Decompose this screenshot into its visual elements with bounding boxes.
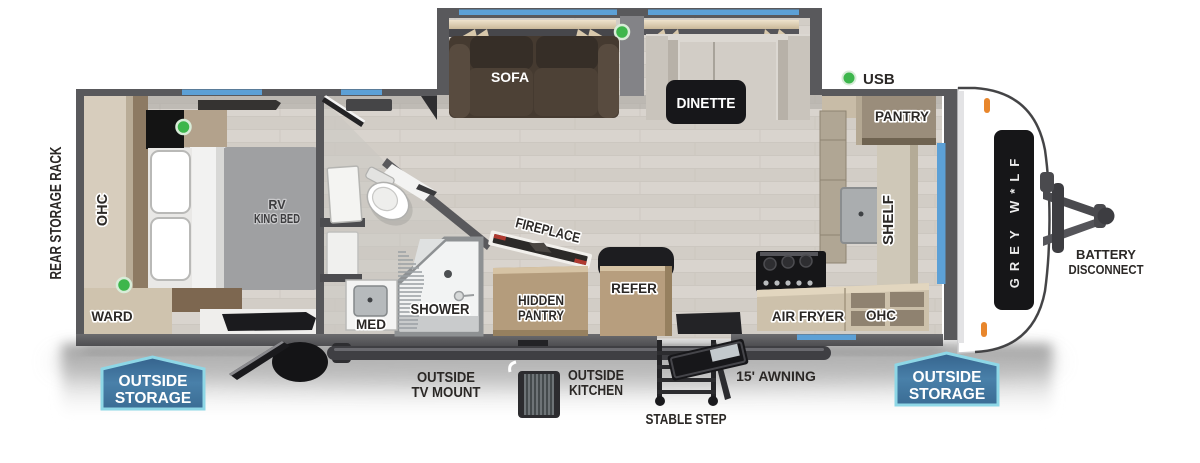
- svg-text:GREY W*LF: GREY W*LF: [1007, 152, 1022, 288]
- svg-text:RV: RV: [268, 198, 286, 212]
- svg-text:AIR FRYER: AIR FRYER: [772, 309, 845, 324]
- svg-text:TV MOUNT: TV MOUNT: [412, 385, 481, 401]
- svg-text:OUTSIDE: OUTSIDE: [568, 368, 624, 384]
- svg-text:OHC: OHC: [866, 308, 896, 323]
- svg-text:OUTSIDE: OUTSIDE: [913, 369, 982, 386]
- svg-text:SOFA: SOFA: [491, 69, 529, 85]
- svg-text:DINETTE: DINETTE: [677, 95, 736, 112]
- svg-text:DISCONNECT: DISCONNECT: [1069, 262, 1144, 277]
- svg-text:BATTERY: BATTERY: [1076, 247, 1136, 262]
- svg-text:PANTRY: PANTRY: [518, 308, 564, 323]
- svg-text:HIDDEN: HIDDEN: [518, 293, 564, 308]
- svg-text:OUTSIDE: OUTSIDE: [417, 370, 475, 386]
- svg-text:STORAGE: STORAGE: [909, 386, 985, 403]
- svg-text:REFER: REFER: [611, 281, 657, 296]
- svg-text:STABLE STEP: STABLE STEP: [646, 411, 727, 428]
- svg-text:USB: USB: [863, 71, 895, 88]
- svg-text:PANTRY: PANTRY: [875, 109, 929, 124]
- svg-text:SHELF: SHELF: [880, 195, 897, 245]
- svg-text:KING BED: KING BED: [254, 212, 300, 226]
- svg-text:REAR STORAGE RACK: REAR STORAGE RACK: [48, 146, 65, 280]
- svg-text:STORAGE: STORAGE: [115, 390, 191, 407]
- svg-text:WARD: WARD: [91, 309, 132, 324]
- svg-text:KITCHEN: KITCHEN: [569, 383, 623, 399]
- svg-text:MED: MED: [356, 317, 386, 332]
- svg-text:OHC: OHC: [95, 193, 111, 226]
- svg-text:SHOWER: SHOWER: [411, 301, 470, 318]
- svg-text:15' AWNING: 15' AWNING: [736, 368, 816, 384]
- svg-text:OUTSIDE: OUTSIDE: [119, 373, 188, 390]
